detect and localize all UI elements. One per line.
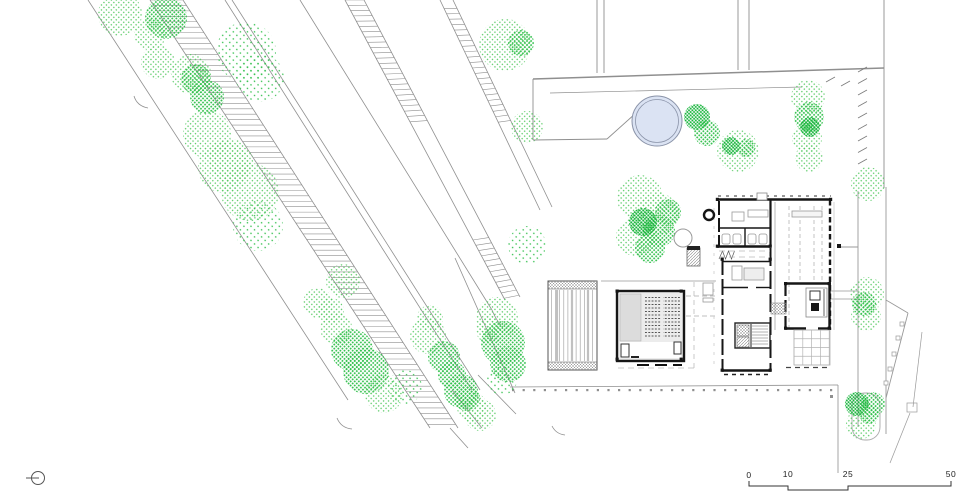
trees-layer [98,0,885,439]
layer-annotations: 0102550 [26,469,956,490]
tree [233,201,283,251]
scale-label: 10 [783,469,793,479]
tree [852,292,876,316]
tree [190,80,224,114]
layer-fence [510,385,838,473]
tree [655,199,681,225]
tree [326,264,360,298]
scale-bar [749,481,951,490]
tree [629,208,657,236]
scale-label: 0 [746,470,751,480]
tree [694,120,720,146]
tree [737,139,755,157]
tree [511,111,543,143]
layer-auditorium [601,281,718,368]
site-plan-drawing: 0102550 [0,0,970,500]
tree [141,45,175,79]
scale-label: 25 [843,469,853,479]
tree [800,117,820,137]
tree [487,365,517,395]
tree [795,144,823,172]
tree [464,399,496,431]
tree [508,226,546,264]
tree [134,18,166,50]
layer-pergola [548,281,597,370]
tree [508,30,534,56]
tree [859,404,879,424]
site-plan-page: 0102550 [0,0,970,500]
layer-boundaries [533,0,884,188]
scale-label: 50 [946,469,956,479]
tree [236,54,284,102]
tree [851,167,885,201]
tree [635,233,665,263]
layer-parking-marks [826,67,867,164]
tree [388,370,422,404]
pool [632,96,682,146]
